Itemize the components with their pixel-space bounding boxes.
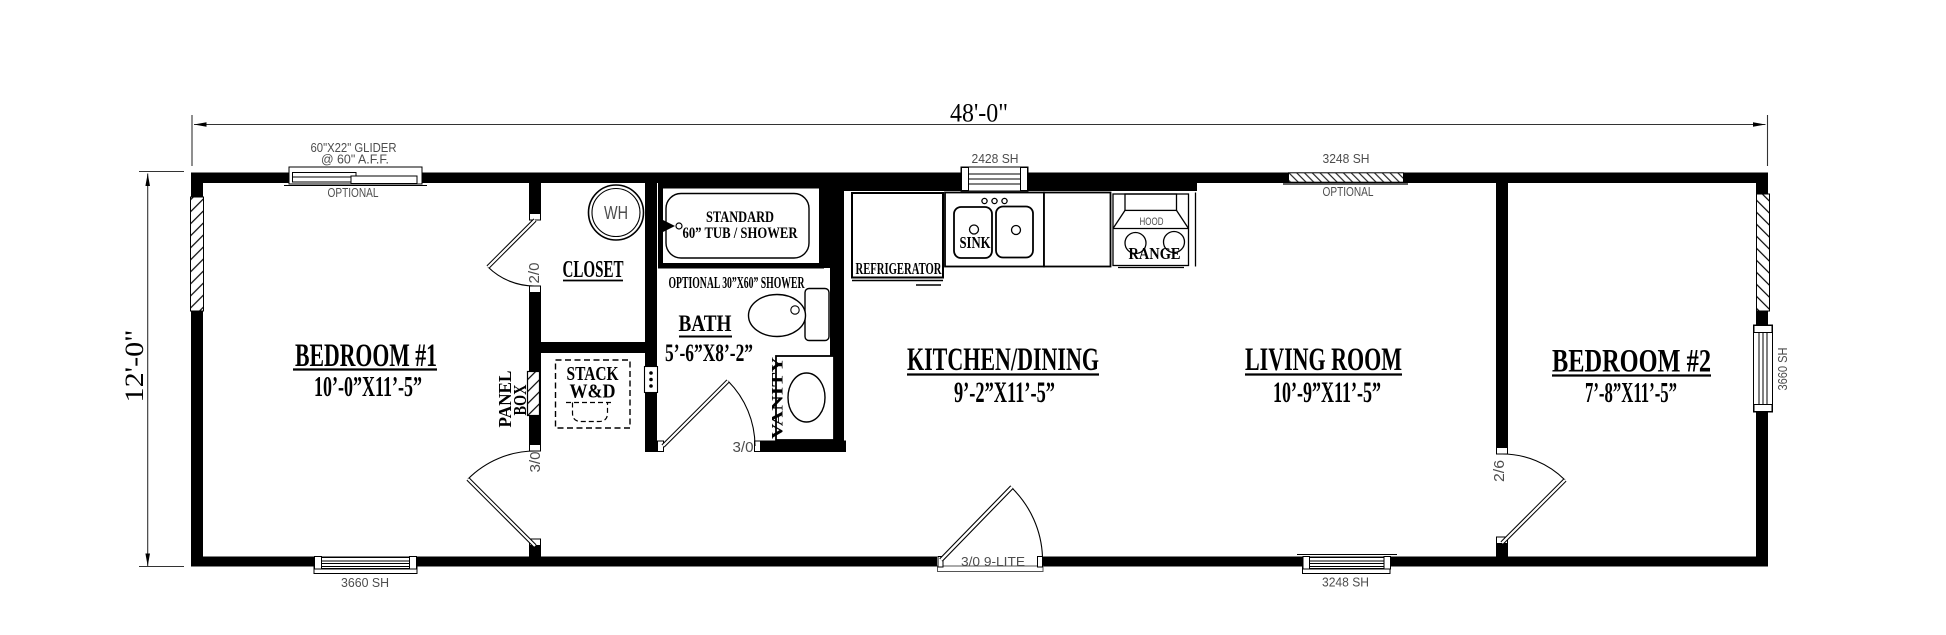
svg-text:OPTIONAL 30”X60” SHOWER: OPTIONAL 30”X60” SHOWER [669,273,805,292]
svg-text:CLOSET: CLOSET [563,257,624,283]
svg-text:3660 SH: 3660 SH [341,576,389,590]
svg-text:10’-9”X11’-5”: 10’-9”X11’-5” [1273,376,1381,409]
svg-text:LIVING ROOM: LIVING ROOM [1245,342,1402,378]
svg-text:VANITY: VANITY [770,357,787,439]
svg-text:3248 SH: 3248 SH [1322,576,1369,590]
svg-text:48'-0": 48'-0" [950,99,1008,128]
svg-text:OPTIONAL: OPTIONAL [328,186,379,200]
svg-text:5’-6”X8’-2”: 5’-6”X8’-2” [665,340,753,367]
svg-text:3248 SH: 3248 SH [1323,152,1370,166]
svg-text:W&D: W&D [570,381,616,403]
svg-text:OPTIONAL: OPTIONAL [1323,185,1374,199]
svg-text:7’-8”X11’-5”: 7’-8”X11’-5” [1585,377,1677,409]
svg-text:SINK: SINK [960,233,991,252]
svg-text:3/0: 3/0 [528,452,544,473]
svg-text:3/0: 3/0 [733,440,754,456]
svg-text:HOOD: HOOD [1140,216,1164,228]
svg-text:2/0: 2/0 [527,263,543,284]
svg-text:WH: WH [604,203,628,223]
svg-text:RANGE: RANGE [1129,244,1181,263]
svg-text:STANDARD: STANDARD [706,209,774,226]
svg-text:2428 SH: 2428 SH [972,152,1019,166]
svg-text:2/6: 2/6 [1492,460,1508,482]
svg-text:3660 SH: 3660 SH [1776,348,1790,391]
svg-text:60” TUB / SHOWER: 60” TUB / SHOWER [683,225,798,242]
svg-text:BEDROOM #2: BEDROOM #2 [1552,344,1711,380]
svg-text:BATH: BATH [679,311,732,336]
svg-text:BOX: BOX [510,385,530,416]
svg-text:9’-2”X11’-5”: 9’-2”X11’-5” [954,376,1055,409]
svg-text:@ 60" A.F.F.: @ 60" A.F.F. [321,153,389,167]
svg-text:3/0 9-LITE: 3/0 9-LITE [961,555,1025,569]
svg-text:KITCHEN/DINING: KITCHEN/DINING [907,342,1099,378]
svg-text:10’-0”X11’-5”: 10’-0”X11’-5” [314,371,422,403]
svg-text:12'-0": 12'-0" [120,330,149,403]
svg-text:REFRIGERATOR: REFRIGERATOR [856,259,943,278]
